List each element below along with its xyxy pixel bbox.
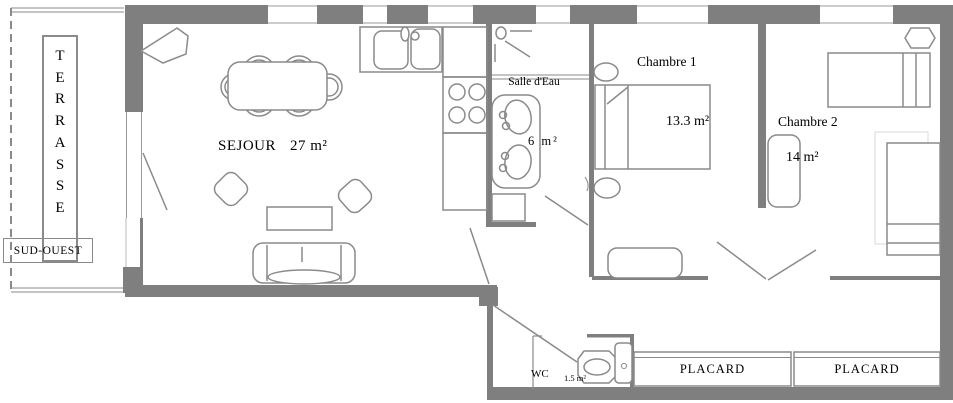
coffee-table: [267, 207, 332, 230]
bedside-table: [594, 63, 618, 81]
sejour-hall-door-swing: [470, 228, 489, 284]
burner-icon: [469, 84, 485, 100]
room-area-wc: 1.5 m²: [564, 373, 586, 383]
bench: [608, 248, 682, 278]
room-area-chambre1: 13.3 m²: [666, 114, 709, 130]
chambre1-door-arc: [585, 177, 588, 191]
wardrobe: [768, 135, 800, 207]
sofa-cushion: [268, 270, 340, 284]
sejour-label-group: SEJOUR 27 m²: [218, 138, 327, 155]
room-area-sejour: 27 m²: [290, 138, 327, 155]
chambre1-door-swing: [545, 196, 588, 225]
orientation-label: SUD-OUEST: [3, 238, 93, 263]
armchair-right: [335, 176, 375, 216]
terrasse-letter: A: [55, 136, 66, 151]
wall-right: [940, 5, 953, 400]
wall-hall-bedroom-right: [830, 276, 941, 280]
door-swing: [505, 41, 530, 57]
window-chambre2: [820, 5, 893, 24]
terrasse-letter: E: [55, 201, 64, 216]
room-label-chambre1: Chambre 1: [637, 54, 697, 70]
placard-right-label: PLACARD: [794, 352, 940, 386]
counter-upper: [443, 27, 487, 77]
terrasse-letter: S: [56, 179, 64, 194]
wall-wc-top: [587, 334, 634, 338]
sejour-furniture: [141, 28, 375, 284]
kitchen: [360, 27, 487, 210]
window-sejour-top: [268, 5, 317, 24]
room-label-sejour: SEJOUR: [218, 138, 276, 155]
terrasse-letter: S: [56, 158, 64, 173]
wall-left-upper: [125, 5, 143, 112]
bed-single-right: [887, 143, 940, 255]
room-area-salle-eau: 6 m²: [528, 134, 559, 149]
window-kitchen-2: [428, 5, 473, 24]
window-chambre1: [637, 5, 708, 24]
bed-single-top: [828, 53, 930, 107]
wall-chambre1-left: [589, 24, 594, 277]
corner-unit: [141, 28, 188, 63]
chambre1-furniture: [545, 63, 710, 278]
faucet-icon: [411, 32, 419, 40]
terrasse-letter: T: [55, 49, 64, 64]
wall-left-jamb: [140, 218, 143, 267]
dining-table: [228, 62, 327, 110]
terrasse-letter: E: [55, 71, 64, 86]
door-hinge-icon: [496, 27, 506, 39]
sofa: [253, 243, 355, 284]
chambre2-furniture: [717, 28, 940, 280]
wall-bathroom-bottom: [492, 222, 536, 227]
entry-door-swing: [493, 305, 577, 362]
faucet-icon: [401, 27, 409, 41]
double-door-right-leaf: [768, 250, 816, 280]
toilet-tank-icon: [615, 343, 632, 383]
wall-chambre1-chambre2: [758, 24, 766, 208]
side-table-hex: [905, 28, 935, 48]
burner-icon: [449, 84, 465, 100]
room-label-salle-eau: Salle d'Eau: [492, 76, 576, 88]
floor-plan-drawing: [0, 0, 953, 403]
bedside-table: [594, 178, 620, 198]
placard-left-label: PLACARD: [634, 352, 791, 386]
window-salle-eau: [536, 5, 570, 24]
terrasse-letter: R: [55, 92, 65, 107]
washing-machine: [492, 194, 525, 221]
counter-lower: [443, 133, 487, 210]
terrasse-letter: R: [55, 114, 65, 129]
burner-icon: [449, 107, 465, 123]
floor-plan: T E R R A S S E SUD-OUEST SEJOUR 27 m² S…: [0, 0, 953, 403]
burner-icon: [469, 107, 485, 123]
room-area-chambre2: 14 m²: [786, 150, 819, 166]
wall-sejour-bottom: [125, 285, 497, 297]
balcony-door-swing: [143, 153, 167, 210]
window-kitchen-1: [363, 5, 387, 24]
wall-entry-left: [487, 306, 493, 389]
wall-bottom: [487, 387, 953, 400]
double-door-left-leaf: [717, 242, 766, 279]
armchair-left: [211, 169, 251, 209]
salle-eau: [492, 27, 589, 221]
room-label-wc: WC: [531, 368, 549, 380]
terrasse-label: T E R R A S S E: [42, 35, 78, 262]
room-label-chambre2: Chambre 2: [778, 114, 838, 130]
wall-entry-corner-nub: [479, 287, 498, 306]
